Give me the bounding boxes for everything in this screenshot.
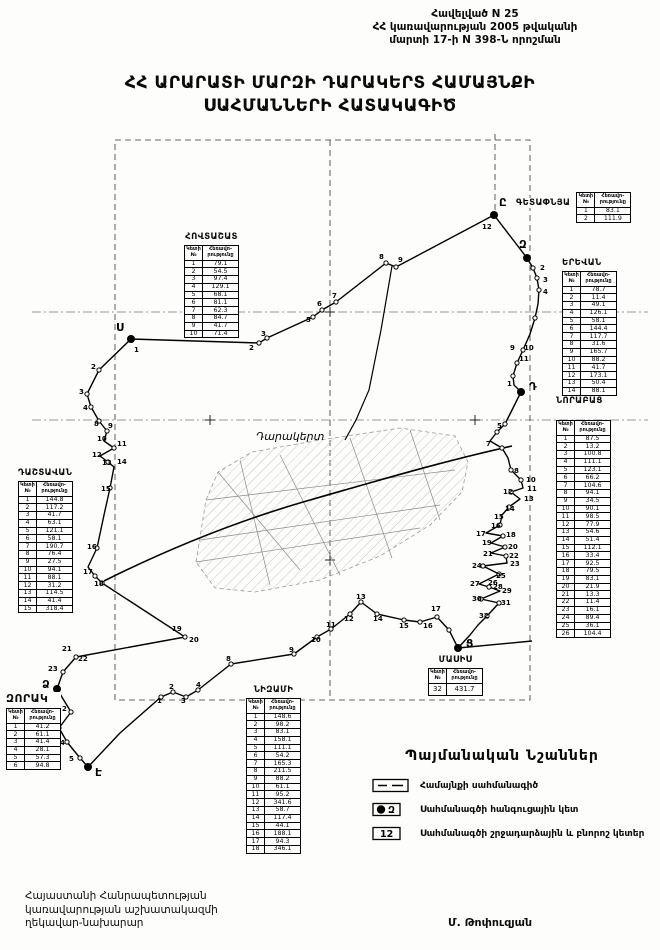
svg-text:3: 3	[79, 388, 84, 396]
footer-line3: ղեկավար-նախարար	[25, 917, 218, 931]
svg-text:4: 4	[196, 681, 201, 689]
svg-text:5: 5	[306, 316, 311, 324]
svg-text:22: 22	[78, 655, 88, 663]
svg-text:9: 9	[108, 422, 113, 430]
svg-text:21: 21	[483, 550, 493, 558]
svg-text:11: 11	[519, 355, 529, 363]
svg-text:7: 7	[486, 440, 491, 448]
boundary-line-symbol-icon	[372, 778, 410, 793]
svg-text:12: 12	[380, 829, 393, 840]
svg-text:27: 27	[470, 580, 480, 588]
svg-text:Ց: Ց	[466, 638, 473, 650]
turning-point-symbol-icon: 12	[372, 826, 410, 841]
boundary-table-hovtashat: ՀՈՎՏԱՇԱՏԿետի №Հեռավո-րությունը179.1254.5…	[184, 232, 239, 338]
svg-text:8: 8	[379, 253, 384, 261]
scanned-map-page: Հավելված N 25 ՀՀ կառավարության 2005 թվակ…	[0, 0, 660, 950]
svg-text:12: 12	[344, 615, 354, 623]
svg-text:17: 17	[83, 568, 93, 576]
svg-text:20: 20	[189, 636, 199, 644]
svg-text:18: 18	[94, 580, 104, 588]
svg-text:15: 15	[494, 513, 504, 521]
svg-text:1: 1	[134, 346, 139, 354]
svg-text:10: 10	[524, 344, 534, 352]
svg-text:11: 11	[527, 485, 537, 493]
page-title: ՀՀ ԱՐԱՐԱՏԻ ՄԱՐԶԻ ԴԱՐԱԿԵՐՏ ՀԱՄԱՅՆՔԻ ՍԱՀՄԱ…	[0, 72, 660, 118]
svg-text:1: 1	[157, 697, 162, 705]
svg-text:11: 11	[117, 440, 127, 448]
svg-text:10: 10	[97, 435, 107, 443]
svg-text:16: 16	[87, 543, 97, 551]
svg-text:6: 6	[317, 300, 322, 308]
svg-text:Զ: Զ	[519, 239, 527, 251]
legend-item-boundary: Համայնքի սահմանագիծ	[372, 778, 632, 793]
svg-text:3: 3	[181, 697, 186, 705]
appendix-line2: ՀՀ կառավարության 2005 թվականի	[300, 21, 650, 34]
svg-text:7: 7	[332, 292, 337, 300]
svg-text:19: 19	[172, 625, 182, 633]
appendix-note: Հավելված N 25 ՀՀ կառավարության 2005 թվակ…	[300, 8, 650, 47]
svg-text:8: 8	[94, 420, 99, 428]
svg-text:Ձ: Ձ	[42, 679, 50, 691]
svg-text:2: 2	[91, 363, 96, 371]
svg-text:10: 10	[311, 636, 321, 644]
boundary-table-norabats: ՆՈՐԱԲԱՑԿետի №Հեռավո-րությունը187.5213.23…	[556, 396, 611, 638]
svg-text:13: 13	[102, 459, 112, 467]
svg-text:29: 29	[502, 587, 512, 595]
svg-text:22: 22	[509, 552, 519, 560]
svg-text:2: 2	[249, 344, 254, 352]
boundary-table-nizami: ՆԻԶԱՄԻԿետի №Հեռավո-րությունը1148.6298.23…	[246, 685, 301, 854]
svg-text:4: 4	[543, 288, 548, 296]
svg-text:8: 8	[514, 467, 519, 475]
svg-text:2: 2	[540, 264, 545, 272]
settlement-label: Դարակերտ	[256, 430, 325, 443]
svg-text:Զ: Զ	[388, 805, 395, 816]
appendix-line3: մարտի 17-ի N 398-Ն որոշման	[300, 34, 650, 47]
svg-text:Է: Է	[95, 767, 102, 779]
table-caption: ՆՈՐԱԲԱՑ	[556, 396, 611, 406]
page-title-line1: ՀՀ ԱՐԱՐԱՏԻ ՄԱՐԶԻ ԴԱՐԱԿԵՐՏ ՀԱՄԱՅՆՔԻ	[0, 72, 660, 95]
junction-point-symbol-icon: Զ	[372, 802, 410, 817]
svg-text:9: 9	[510, 344, 515, 352]
svg-text:16: 16	[491, 522, 501, 530]
svg-text:32: 32	[479, 612, 489, 620]
svg-text:Ս: Ս	[116, 322, 124, 334]
svg-text:18: 18	[506, 531, 516, 539]
legend-item-label: Համայնքի սահմանագիծ	[420, 781, 538, 791]
svg-text:20: 20	[508, 543, 518, 551]
svg-text:11: 11	[326, 621, 336, 629]
svg-text:3: 3	[261, 330, 266, 338]
svg-text:16: 16	[423, 622, 433, 630]
boundary-table-dashtavan: ԴԱՇՏԱՎԱՆԿետի №Հեռավո-րությունը1144.82117…	[18, 468, 73, 613]
boundary-table-masis: ՄԱՍԻՍԿետի №Հեռավո-րությունը32431.7	[428, 655, 483, 696]
svg-text:4: 4	[83, 404, 88, 412]
svg-text:Դ: Դ	[529, 381, 537, 393]
svg-text:9: 9	[289, 646, 294, 654]
table-caption: ԶՈՐԱԿ	[6, 692, 61, 705]
svg-text:21: 21	[62, 645, 72, 653]
svg-text:3: 3	[543, 276, 548, 284]
svg-text:19: 19	[482, 539, 492, 547]
svg-text:12: 12	[503, 488, 513, 496]
svg-text:15: 15	[399, 622, 409, 630]
svg-text:24: 24	[472, 562, 482, 570]
legend-item-label: Սահմանագծի հանգուցային կետ	[420, 805, 578, 815]
svg-text:Ը: Ը	[499, 197, 507, 209]
table-caption: ԵՐԵՎԱՆ	[562, 258, 617, 268]
svg-text:17: 17	[431, 605, 441, 613]
svg-text:31: 31	[501, 599, 511, 607]
table-caption: ԴԱՇՏԱՎԱՆ	[18, 468, 73, 478]
svg-text:10: 10	[526, 476, 536, 484]
svg-text:2: 2	[62, 705, 67, 713]
map-legend: Պայմանական Նշաններ Համայնքի սահմանագիծ Զ…	[372, 748, 632, 850]
svg-text:2: 2	[169, 683, 174, 691]
legend-item-junction-point: Զ Սահմանագծի հանգուցային կետ	[372, 802, 632, 817]
svg-text:12: 12	[92, 451, 102, 459]
settlement-area	[196, 428, 468, 592]
svg-text:30: 30	[472, 595, 482, 603]
svg-text:8: 8	[226, 655, 231, 663]
svg-text:5: 5	[69, 755, 74, 763]
legend-item-label: Սահմանագծի շրջադարձային և բնորոշ կետեր	[420, 829, 644, 839]
svg-text:14: 14	[505, 505, 515, 513]
legend-item-turning-point: 12 Սահմանագծի շրջադարձային և բնորոշ կետե…	[372, 826, 632, 841]
svg-text:13: 13	[356, 593, 366, 601]
page-title-line2: ՍԱՀՄԱՆՆԵՐԻ ՀԱՏԱԿԱԳԻԾ	[0, 95, 660, 118]
table-caption: ՆԻԶԱՄԻ	[246, 685, 301, 695]
svg-text:1: 1	[507, 380, 512, 388]
footer-line1: Հայաստանի Հանրապետության	[25, 890, 218, 904]
boundary-table-getapnya: ԳԵՏԱՓՆՅԱԿետի №Հեռավո-րությունը183.12111.…	[516, 192, 631, 223]
table-caption: ՀՈՎՏԱՇԱՏ	[184, 232, 239, 242]
svg-text:13: 13	[524, 495, 534, 503]
svg-text:17: 17	[476, 530, 486, 538]
table-caption: ՄԱՍԻՍ	[428, 655, 483, 665]
svg-text:12: 12	[482, 223, 492, 231]
svg-text:23: 23	[510, 560, 520, 568]
table-caption: ԳԵՏԱՓՆՅԱ	[516, 198, 570, 208]
boundary-table-zorak: ԶՈՐԱԿԿետի №Հեռավո-րությունը141.2261.1341…	[6, 692, 61, 770]
svg-text:9: 9	[398, 256, 403, 264]
appendix-line1: Հավելված N 25	[300, 8, 650, 21]
signatory-title: Հայաստանի Հանրապետության կառավարության ա…	[25, 890, 218, 931]
svg-text:23: 23	[48, 665, 58, 673]
svg-text:15: 15	[101, 485, 111, 493]
svg-text:14: 14	[373, 615, 383, 623]
footer-line2: կառավարության աշխատակազմի	[25, 904, 218, 918]
legend-title: Պայմանական Նշաններ	[372, 748, 632, 764]
svg-text:5: 5	[497, 422, 502, 430]
boundary-table-yerevan: ԵՐԵՎԱՆԿետի №Հեռավո-րությունը178.7211.434…	[562, 258, 617, 396]
svg-text:14: 14	[117, 458, 127, 466]
signatory-name: Մ. Թոփուզյան	[448, 916, 532, 929]
